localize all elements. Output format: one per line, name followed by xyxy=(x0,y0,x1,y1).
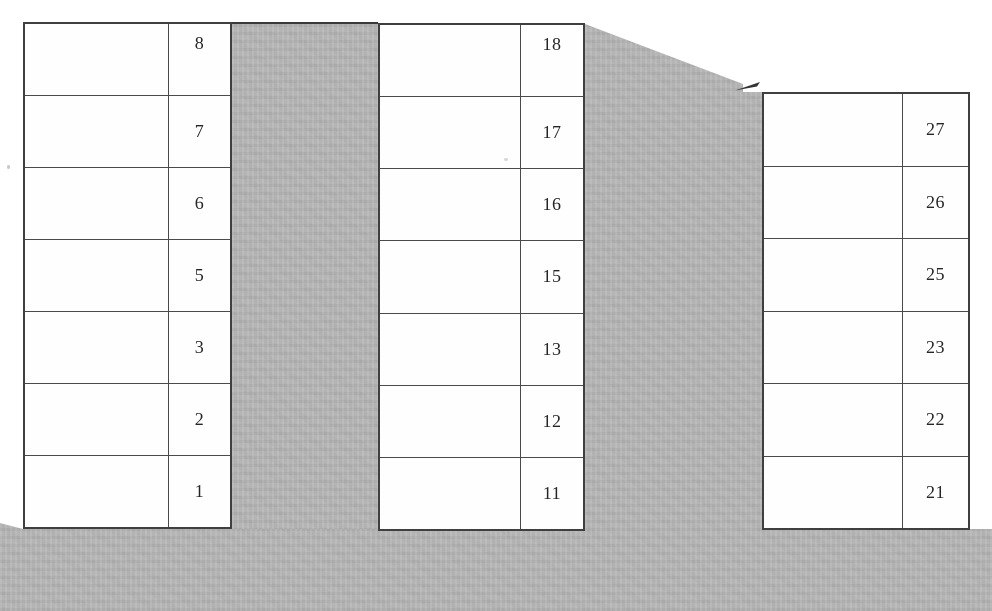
floor-number: 7 xyxy=(168,96,230,167)
floor-number: 26 xyxy=(902,167,968,239)
floor-cell-blank xyxy=(764,457,902,529)
floor-cell-blank xyxy=(380,97,520,168)
floor-number: 8 xyxy=(168,24,230,95)
floor-row: 6 xyxy=(25,167,230,239)
floor-row: 7 xyxy=(25,95,230,167)
shade-gap-right xyxy=(585,24,762,611)
floor-number: 2 xyxy=(168,384,230,455)
floor-cell-blank xyxy=(25,24,168,95)
floor-row: 27 xyxy=(764,94,968,166)
floor-number: 17 xyxy=(520,97,583,168)
floor-row: 18 xyxy=(380,25,583,96)
floor-number: 1 xyxy=(168,456,230,527)
floor-cell-blank xyxy=(764,94,902,166)
floor-cell-blank xyxy=(25,96,168,167)
floor-cell-blank xyxy=(25,384,168,455)
floor-cell-blank xyxy=(380,458,520,529)
floor-row: 21 xyxy=(764,456,968,529)
floor-cell-blank xyxy=(380,169,520,240)
floor-number: 11 xyxy=(520,458,583,529)
floor-number: 12 xyxy=(520,386,583,457)
floor-number: 21 xyxy=(902,457,968,529)
floor-cell-blank xyxy=(764,167,902,239)
floor-row: 13 xyxy=(380,313,583,385)
floor-row: 11 xyxy=(380,457,583,529)
floor-number: 5 xyxy=(168,240,230,311)
floor-row: 12 xyxy=(380,385,583,457)
floor-number: 23 xyxy=(902,312,968,384)
floor-row: 26 xyxy=(764,166,968,239)
floor-row: 15 xyxy=(380,240,583,312)
floor-cell-blank xyxy=(25,456,168,527)
floor-number: 25 xyxy=(902,239,968,311)
floor-cell-blank xyxy=(380,241,520,312)
floor-cell-blank xyxy=(25,240,168,311)
floor-cell-blank xyxy=(380,314,520,385)
floor-number: 15 xyxy=(520,241,583,312)
floor-number: 27 xyxy=(902,94,968,166)
floor-row: 22 xyxy=(764,383,968,456)
scan-speck xyxy=(7,165,10,169)
floor-number: 16 xyxy=(520,169,583,240)
floor-cell-blank xyxy=(764,239,902,311)
floor-number: 18 xyxy=(520,25,583,96)
building-table-1: 8765321 xyxy=(23,22,232,529)
floor-row: 5 xyxy=(25,239,230,311)
floor-row: 23 xyxy=(764,311,968,384)
floor-row: 17 xyxy=(380,96,583,168)
floor-number: 6 xyxy=(168,168,230,239)
floor-row: 2 xyxy=(25,383,230,455)
floor-number: 3 xyxy=(168,312,230,383)
floor-cell-blank xyxy=(380,386,520,457)
floor-number: 13 xyxy=(520,314,583,385)
scan-speck xyxy=(504,158,508,161)
building-table-2: 18171615131211 xyxy=(378,23,585,531)
floor-row: 8 xyxy=(25,24,230,95)
floor-row: 3 xyxy=(25,311,230,383)
stray-tick-mark xyxy=(735,81,761,93)
floor-row: 1 xyxy=(25,455,230,527)
floor-cell-blank xyxy=(25,168,168,239)
floor-row: 16 xyxy=(380,168,583,240)
floor-cell-blank xyxy=(764,312,902,384)
floor-cell-blank xyxy=(380,25,520,96)
floor-row: 25 xyxy=(764,238,968,311)
floor-cell-blank xyxy=(764,384,902,456)
shade-gap-left xyxy=(232,22,378,611)
shade-ground xyxy=(0,523,992,611)
scanned-page: 8765321 18171615131211 272625232221 xyxy=(0,0,992,611)
floor-cell-blank xyxy=(25,312,168,383)
building-table-3: 272625232221 xyxy=(762,92,970,530)
floor-number: 22 xyxy=(902,384,968,456)
